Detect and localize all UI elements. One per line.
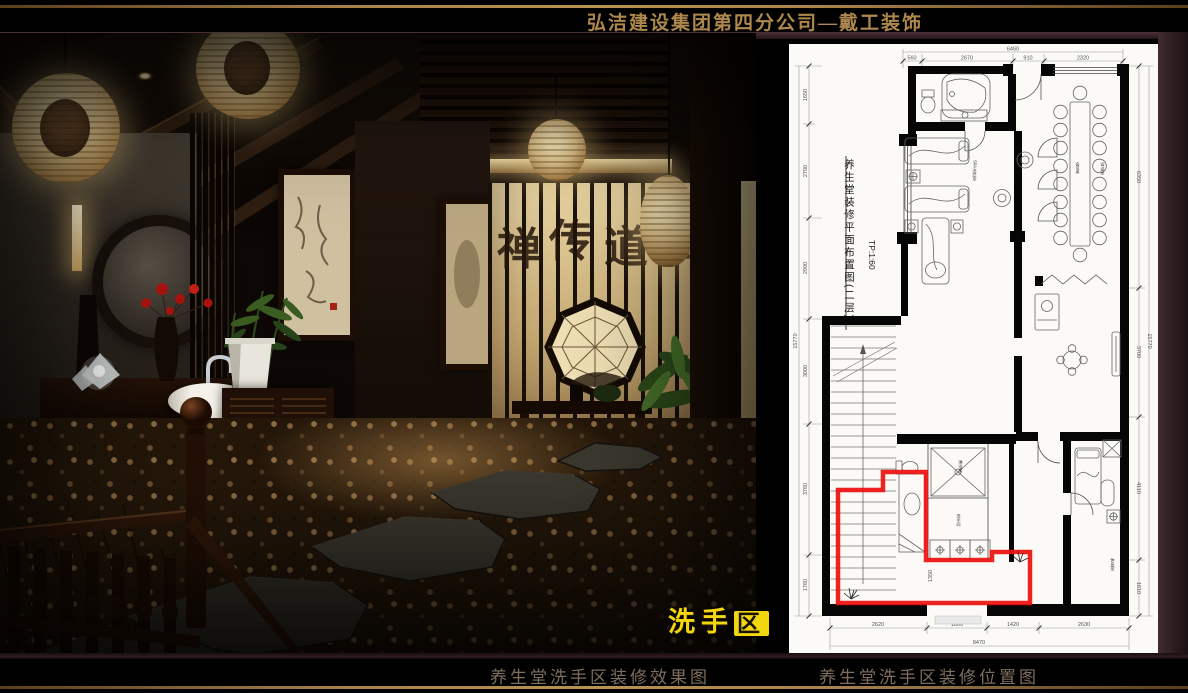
room-label-spa: SPA治疗室 (973, 160, 978, 181)
svg-text:2320: 2320 (1077, 56, 1089, 62)
svg-text:2630: 2630 (1078, 622, 1090, 628)
room-label-table: 会议桌 (1075, 161, 1080, 174)
interior-render-photo: 禅 传 道 悟 (0, 33, 756, 653)
svg-text:3000: 3000 (803, 365, 809, 377)
lamp-silhouette (224, 41, 270, 95)
caption-render: 养生堂洗手区装修效果图 (380, 663, 820, 688)
screen-calligraphy-char: 禅 (497, 213, 541, 277)
svg-text:3760: 3760 (803, 483, 809, 495)
stair-railing (0, 368, 300, 653)
svg-text:560: 560 (907, 56, 916, 62)
floor-plan-panel: 6460 560 2670 910 2320 15770 1650 2700 2… (789, 44, 1158, 653)
bell-pendant-lamp (640, 175, 696, 267)
svg-text:8470: 8470 (973, 640, 985, 646)
room-label-washroom: 洗手间 (956, 513, 962, 528)
svg-text:1650: 1650 (803, 89, 809, 101)
svg-text:6460: 6460 (1007, 47, 1019, 53)
wash-area-label-text: 洗手 (668, 607, 734, 637)
svg-text:4110: 4110 (1135, 482, 1141, 494)
rattan-pendant-lamp (528, 119, 586, 181)
room-label-rest: 休息室 (1110, 557, 1116, 571)
svg-text:1420: 1420 (1007, 622, 1019, 628)
presentation-board: { "header": { "company_title": "弘洁建设集团第四… (0, 0, 1188, 693)
svg-text:2670: 2670 (961, 56, 973, 62)
entry-mat (935, 616, 981, 624)
spotlight-icon (136, 71, 154, 81)
company-header: 弘洁建设集团第四分公司—戴工装饰 (455, 8, 1055, 35)
svg-text:15770: 15770 (793, 333, 799, 348)
plan-title: 养生堂装修平面布置图(二层) (843, 158, 855, 320)
svg-text:1760: 1760 (803, 579, 809, 591)
svg-text:6350: 6350 (1135, 171, 1141, 183)
svg-text:1610: 1610 (1135, 582, 1141, 594)
room-label-meeting: 会议室 (1100, 161, 1106, 175)
art-panel-frame (440, 198, 494, 370)
lamp-silhouette (40, 99, 90, 157)
svg-text:1350: 1350 (928, 570, 934, 582)
svg-text:2700: 2700 (803, 165, 809, 177)
floor-plan-svg: 6460 560 2670 910 2320 15770 1650 2700 2… (789, 44, 1158, 653)
caption-plan: 养生堂洗手区装修位置图 (789, 663, 1069, 688)
svg-text:15770: 15770 (1146, 333, 1152, 348)
frame-strip-right (1158, 32, 1188, 658)
plan-scale: TP:1:60 (867, 240, 877, 270)
frame-strip-bottom (0, 653, 1188, 659)
svg-text:910: 910 (1023, 56, 1032, 62)
bottom-gold-rule (0, 686, 1188, 689)
svg-text:2900: 2900 (803, 262, 809, 274)
room-label-shower: 淋浴房 (958, 459, 964, 474)
svg-text:2620: 2620 (872, 622, 884, 628)
lamp-cord (668, 33, 670, 179)
wash-area-label-box: 区 (734, 611, 769, 636)
wall-sconce (72, 205, 82, 271)
svg-text:3700: 3700 (1135, 346, 1141, 358)
screen-calligraphy-char: 传 (549, 205, 593, 269)
lamp-cord (64, 33, 67, 77)
wash-area-label: 洗手区 (668, 600, 788, 636)
lamp-cord (555, 73, 557, 121)
